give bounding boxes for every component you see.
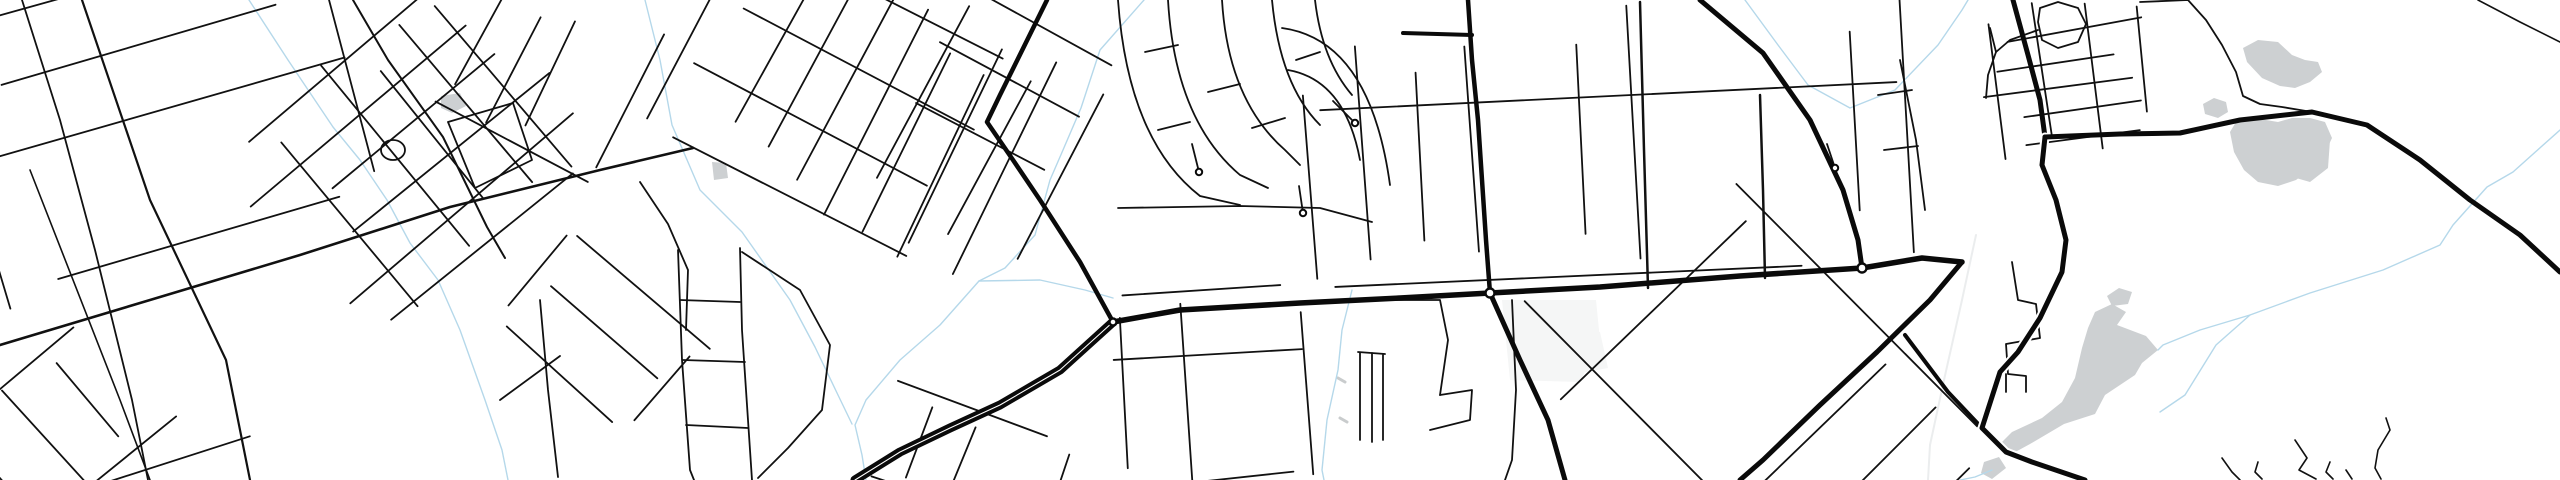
- street: [1333, 101, 1355, 123]
- street: [540, 300, 558, 477]
- map-canvas: [0, 0, 2560, 480]
- street: [740, 248, 752, 480]
- curved-street: [1222, 0, 1300, 165]
- stream-line: [1745, 0, 1968, 108]
- stream-mark: [1338, 378, 1345, 382]
- motorway-centerline: [855, 322, 1113, 480]
- street: [683, 360, 745, 362]
- street: [1047, 455, 1070, 480]
- street: [2326, 462, 2333, 479]
- street: [948, 81, 1031, 234]
- water-body-polygon: [2203, 98, 2228, 118]
- water-body-polygon: [1981, 457, 2006, 479]
- stream-line: [1322, 290, 1352, 480]
- street: [22, 0, 148, 480]
- street: [2222, 458, 2240, 480]
- minor-road-layer: [0, 0, 2560, 480]
- street: [1122, 285, 1280, 295]
- water-polygon-layer: [441, 40, 2332, 479]
- street: [1180, 304, 1193, 480]
- faint-landuse-polygon: [1556, 332, 1608, 377]
- street: [909, 49, 1002, 242]
- street: [1626, 6, 1640, 259]
- culdesac-node: [1352, 120, 1358, 126]
- street: [525, 21, 575, 125]
- curved-street: [1315, 0, 1352, 95]
- culdesac-node: [1300, 210, 1306, 216]
- street: [686, 425, 748, 428]
- street: [1430, 390, 1472, 430]
- street: [862, 53, 950, 231]
- street: [1997, 54, 2113, 71]
- street: [82, 0, 250, 480]
- street: [0, 436, 43, 480]
- curved-street: [1168, 0, 1268, 188]
- curved-street: [1288, 70, 1360, 160]
- street: [1208, 84, 1240, 92]
- major-road: [1403, 33, 1472, 35]
- street: [877, 6, 969, 178]
- street: [680, 300, 740, 302]
- street: [1899, 0, 1914, 252]
- junction-node: [1486, 289, 1495, 298]
- stream-line: [2158, 130, 2560, 350]
- street: [1303, 95, 1317, 278]
- landuse-layer: [1502, 235, 1976, 480]
- street: [551, 286, 657, 378]
- street: [2255, 462, 2262, 479]
- street: [2008, 17, 2142, 42]
- junction-node: [1110, 319, 1117, 326]
- street: [1736, 184, 1977, 426]
- street: [2375, 418, 2390, 479]
- street: [500, 356, 560, 400]
- street: [391, 173, 573, 319]
- street: [781, 0, 1003, 59]
- major-road: [1740, 262, 1962, 480]
- street: [1884, 146, 1918, 150]
- street: [1296, 52, 1320, 60]
- street: [36, 416, 176, 480]
- street: [1153, 472, 1293, 480]
- curved-street: [1272, 0, 1320, 125]
- street: [1301, 312, 1314, 474]
- street: [1395, 300, 1448, 395]
- street: [1988, 24, 2005, 159]
- street: [1114, 349, 1302, 360]
- street: [2, 391, 86, 480]
- street: [1900, 60, 1925, 210]
- street: [1120, 318, 1128, 468]
- street: [30, 170, 150, 480]
- street: [647, 0, 742, 118]
- street: [736, 0, 811, 122]
- map-viewport[interactable]: [0, 0, 2560, 480]
- street: [1576, 45, 1585, 234]
- street: [596, 34, 664, 167]
- street: [949, 427, 976, 480]
- street: [916, 103, 1044, 170]
- street: [2346, 470, 2352, 479]
- street: [2, 5, 276, 85]
- street: [1984, 78, 2132, 97]
- street: [1707, 364, 1886, 480]
- street: [1760, 95, 1765, 278]
- street: [797, 0, 897, 180]
- stream-line: [2160, 315, 2250, 412]
- street: [577, 236, 710, 349]
- street: [1640, 2, 1648, 288]
- street: [673, 137, 906, 256]
- water-body-polygon: [1996, 304, 2158, 456]
- curved-street: [1118, 0, 1240, 205]
- street: [1320, 82, 1896, 110]
- street: [1789, 468, 1970, 480]
- junction-node: [1858, 264, 1867, 273]
- street: [1358, 352, 1385, 354]
- street: [1192, 144, 1199, 172]
- street: [742, 252, 830, 478]
- water-body-polygon: [2243, 40, 2322, 88]
- street: [58, 197, 339, 279]
- street: [2478, 0, 2560, 42]
- curved-street: [381, 140, 405, 160]
- street: [507, 326, 612, 422]
- curved-street: [1282, 28, 1390, 185]
- stream-line: [249, 0, 508, 480]
- street: [2137, 6, 2147, 111]
- culdesac-node: [1832, 165, 1838, 171]
- street: [1791, 407, 1936, 480]
- street: [1850, 32, 1860, 211]
- street: [2038, 2, 2086, 48]
- street: [897, 75, 983, 257]
- major-road: [987, 0, 1113, 322]
- street: [678, 250, 694, 480]
- street: [333, 54, 495, 188]
- culdesac-node: [1196, 169, 1202, 175]
- street: [353, 0, 505, 258]
- street: [1118, 206, 1372, 222]
- street: [0, 58, 345, 169]
- stream-mark: [1340, 418, 1347, 422]
- street: [1416, 73, 1425, 241]
- junction-node-layer: [1110, 120, 1867, 326]
- street: [1158, 122, 1190, 130]
- water-body-polygon: [2107, 288, 2132, 306]
- street: [2295, 440, 2316, 479]
- street: [508, 236, 566, 306]
